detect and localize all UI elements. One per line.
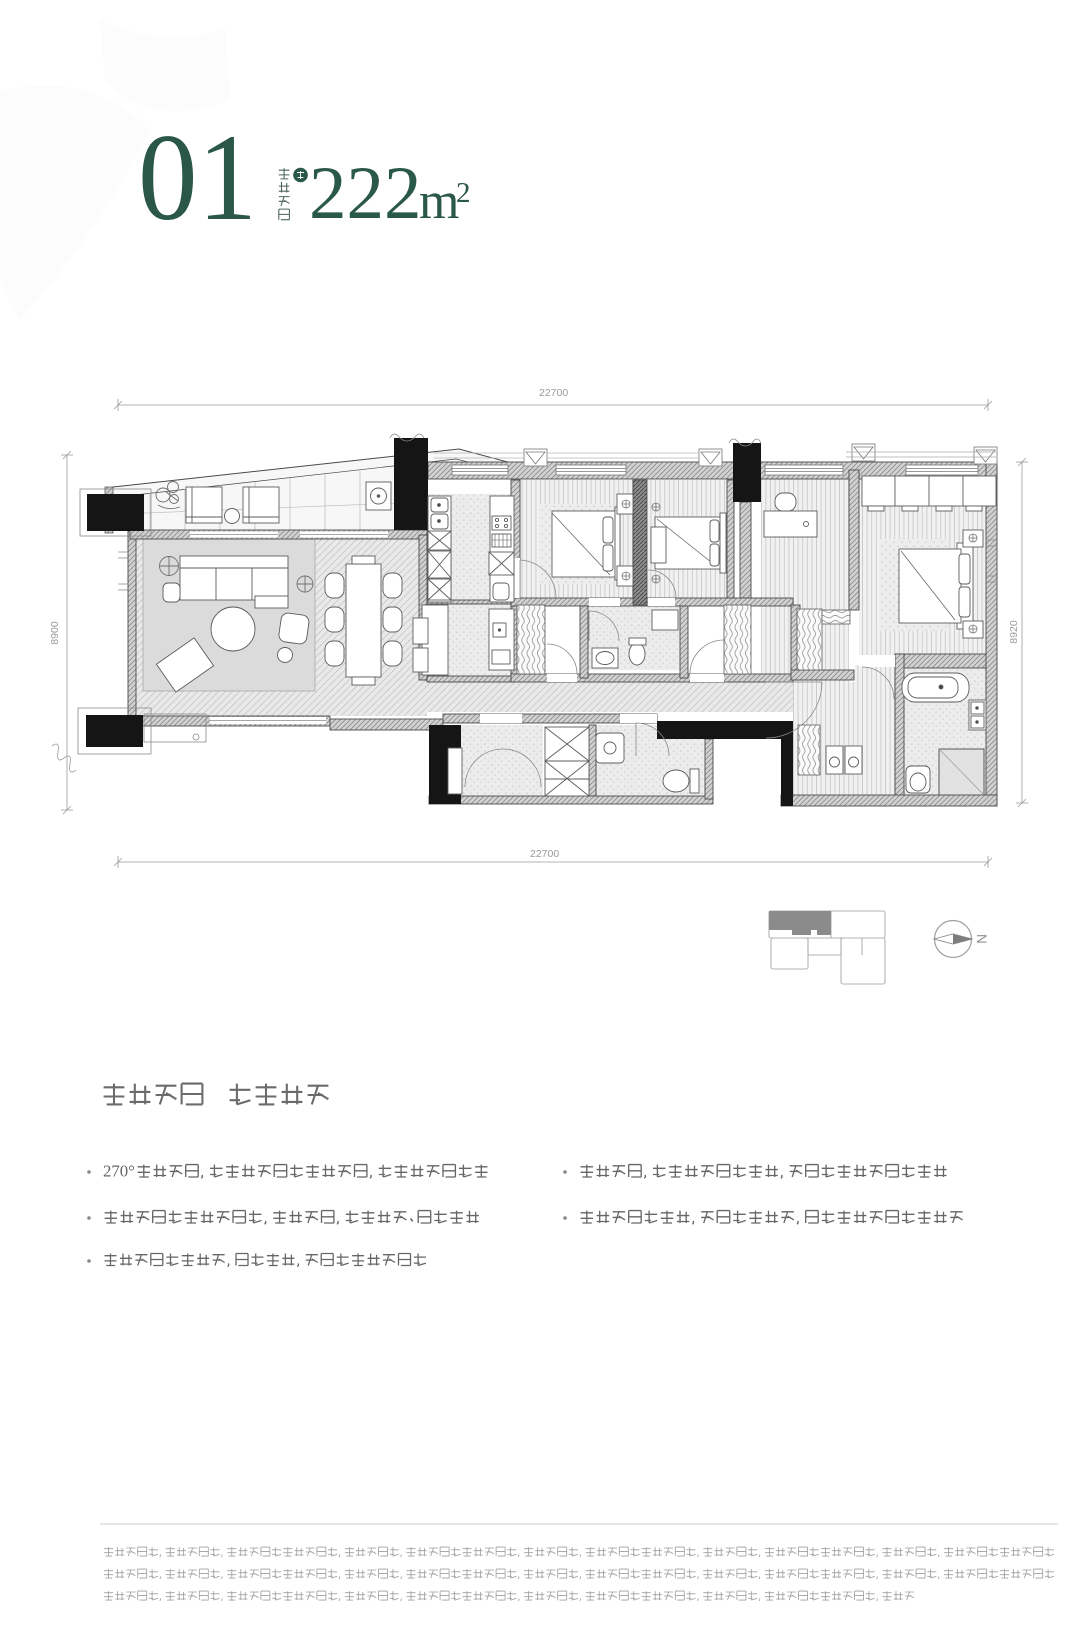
svg-text:270°: 270° <box>103 1162 135 1181</box>
svg-text:8920: 8920 <box>1008 620 1020 644</box>
svg-text:22700: 22700 <box>539 387 568 399</box>
svg-text:22700: 22700 <box>530 848 559 860</box>
svg-text:2: 2 <box>456 177 471 209</box>
svg-text:01: 01 <box>138 110 257 247</box>
svg-text:222: 222 <box>309 152 422 235</box>
svg-text:8900: 8900 <box>49 621 61 645</box>
svg-text:m: m <box>419 173 459 230</box>
svg-text:N: N <box>974 934 989 944</box>
